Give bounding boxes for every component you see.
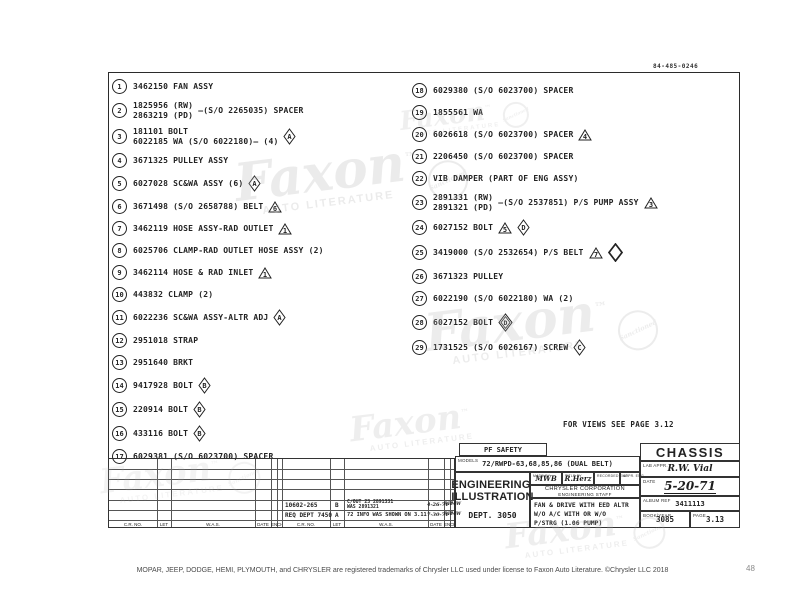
rev-a-checker: MW (451, 512, 461, 517)
drawing-corner-code: 84-485-0246 (653, 63, 698, 70)
item-number: 19 (412, 105, 427, 120)
svg-text:B: B (203, 382, 207, 390)
part-item: 276022190 (S/O 6022180) WA (2) (412, 291, 737, 306)
part-text: 220914 BOLT (133, 405, 188, 415)
models-label: MODELS (458, 458, 478, 463)
item-number: 27 (412, 291, 427, 306)
item-number: 20 (412, 127, 427, 142)
part-item: 212206450 (S/O 6023700) SPACER (412, 149, 737, 164)
item-number: 7 (112, 221, 127, 236)
part-item: 186029380 (S/O 6023700) SPACER (412, 83, 737, 98)
view-ref-triangle-icon: 6 (268, 201, 282, 213)
page-ref-label: PAGE (693, 513, 706, 518)
svg-text:A: A (288, 133, 293, 141)
part-text: 1731525 (S/O 6026167) SCREW (433, 343, 568, 353)
view-ref-triangle-icon: 7 (589, 247, 603, 259)
view-ref-triangle-icon: 1 (258, 267, 272, 279)
views-reference-note: FOR VIEWS SEE PAGE 3.12 (563, 420, 674, 429)
fastener-ref-diamond-icon: D (498, 313, 513, 332)
drawing-description-cell: FAN & DRIVE WITH EED ALTR W/O A/C WITH O… (530, 498, 640, 528)
description-line1: FAN & DRIVE WITH EED ALTR (534, 501, 636, 510)
item-number: 8 (112, 243, 127, 258)
svg-text:4: 4 (583, 133, 587, 141)
svg-text:B: B (198, 406, 202, 414)
svg-text:C: C (578, 344, 582, 352)
rev-b-checker: MW (451, 502, 461, 507)
part-item: 43671325 PULLEY ASSY (112, 153, 412, 168)
chassis-header-cell: CHASSIS (640, 443, 740, 461)
part-text: 6027028 SC&WA ASSY (6) (133, 179, 243, 189)
dept-title: ENGINEERING ILLUSTRATION (451, 480, 533, 503)
part-item: 149417928 BOLTB (112, 377, 412, 394)
page-ref-value: 3.13 (706, 515, 724, 524)
signature-cell-recorded: RECORDED ENG. (594, 472, 620, 485)
svg-text:B: B (198, 430, 202, 438)
part-item: 263671323 PULLEY (412, 269, 737, 284)
made-by-label: MADE BY (533, 474, 550, 478)
part-text: 6027152 BOLT (433, 318, 493, 328)
page-number: 48 (746, 564, 755, 573)
engineering-illustration-cell: ENGINEERING ILLUSTRATION DEPT. 3050 (455, 472, 530, 528)
title-by-label: TITLE BY (565, 474, 582, 478)
trademark-footer: MOPAR, JEEP, DODGE, HEMI, PLYMOUTH, and … (95, 567, 710, 574)
part-item: 22VIB DAMPER (PART OF ENG ASSY) (412, 171, 737, 186)
part-item: 56027028 SC&WA ASSY (6)A (112, 175, 412, 192)
album-ref-value: 3411113 (675, 500, 705, 508)
part-text: 3462114 HOSE & RAD INLET (133, 268, 253, 278)
fastener-ref-diamond-icon: B (193, 425, 206, 442)
part-text: 2891331 (RW)2891321 (PD) (433, 193, 493, 212)
rev-header-let-right: LET (330, 522, 344, 527)
item-number: 5 (112, 176, 127, 191)
part-text: 443832 CLAMP (2) (133, 290, 213, 300)
part-text: 6025706 CLAMP-RAD OUTLET HOSE ASSY (2) (133, 246, 324, 256)
part-text: 433116 BOLT (133, 429, 188, 439)
part-text: 6029380 (S/O 6023700) SPACER (433, 86, 573, 96)
item-number: 3 (112, 129, 127, 144)
rev-b-was-line2: WAS 2891321 (347, 505, 379, 510)
part-text: 3462119 HOSE ASSY-RAD OUTLET (133, 224, 273, 234)
part-item: 15220914 BOLTB (112, 401, 412, 418)
rev-header-crno-left: C.R. NO. (109, 522, 157, 527)
company-division: ENGINEERING STAFF (558, 492, 611, 497)
part-text: 6026618 (S/O 6023700) SPACER (433, 130, 573, 140)
lab-appr-signature: R.W. Vial (667, 464, 712, 474)
item-number: 6 (112, 199, 127, 214)
rev-b-cr-no: 10602-265 (285, 502, 318, 509)
view-ref-triangle-icon: 5 (498, 222, 512, 234)
rev-header-ch-right: CH (450, 522, 455, 527)
item-number: 25 (412, 245, 427, 260)
rev-a-letter: A (335, 512, 339, 519)
part-item: 232891331 (RW)2891321 (PD)—(S/O 2537851)… (412, 193, 737, 212)
models-row: MODELS 72/RWPD-63,68,85,86 (DUAL BELT) (455, 456, 640, 472)
fastener-ref-diamond-icon: A (283, 128, 296, 145)
dept-title-line2: ILLUSTRATION (451, 492, 533, 504)
fastener-ref-diamond-icon: B (198, 377, 211, 394)
fastener-ref-diamond-icon: D (517, 219, 530, 236)
fastener-ref-diamond-icon: B (193, 401, 206, 418)
date-value: 5-20-71 (664, 479, 716, 494)
pf-safety-box: PF SAFETY (459, 443, 547, 456)
page-ref-cell: PAGE 3.13 (690, 511, 740, 528)
album-ref-label: ALBUM REF (643, 498, 671, 503)
item-number: 11 (112, 310, 127, 325)
part-text-suffix: —(S/O 2537851) P/S PUMP ASSY (498, 198, 638, 207)
svg-text:A: A (278, 314, 283, 322)
rev-header-let-left: LET (157, 522, 171, 527)
part-text: 6022236 SC&WA ASSY-ALTR ADJ (133, 313, 268, 323)
description-line2: W/O A/C WITH OR W/O (534, 510, 636, 519)
part-item: 13462150 FAN ASSY (112, 79, 412, 94)
view-ref-triangle-icon: 4 (578, 129, 592, 141)
part-item: 246027152 BOLT5D (412, 219, 737, 236)
part-item: 132951640 BRKT (112, 355, 412, 370)
part-text: 6027152 BOLT (433, 223, 493, 233)
part-text: 2951640 BRKT (133, 358, 193, 368)
parts-list-right: 186029380 (S/O 6023700) SPACER191855561 … (412, 83, 737, 363)
rev-header-was-right: W.A.S. (344, 522, 428, 527)
dept-number: DEPT. 3050 (468, 511, 516, 520)
rev-header-date-right: DATE (428, 522, 444, 527)
item-number: 10 (112, 287, 127, 302)
item-number: 23 (412, 195, 427, 210)
part-item: 86025706 CLAMP-RAD OUTLET HOSE ASSY (2) (112, 243, 412, 258)
part-text-suffix: —(S/O 2265035) SPACER (198, 106, 303, 115)
item-number: 15 (112, 402, 127, 417)
signature-cell-appr: APPR. ENG. (620, 472, 640, 485)
item-number: 16 (112, 426, 127, 441)
item-number: 4 (112, 153, 127, 168)
item-number: 22 (412, 171, 427, 186)
svg-text:D: D (504, 319, 508, 327)
view-ref-triangle-icon: 1 (278, 223, 292, 235)
company-cell: CHRYSLER CORPORATION ENGINEERING STAFF (530, 485, 640, 498)
lab-appr-cell: LAB APPR. R.W. Vial (640, 461, 740, 477)
fastener-ref-diamond-icon: A (248, 175, 261, 192)
part-text: 181101 BOLT6022185 WA (S/O 6022180)— (4) (133, 127, 278, 146)
part-item: 3181101 BOLT6022185 WA (S/O 6022180)— (4… (112, 127, 412, 146)
item-number: 14 (112, 378, 127, 393)
scanned-document-page: 84-485-0246 13462150 FAN ASSY21825956 (R… (0, 0, 792, 612)
rev-header-crno-right: C.R. NO. (282, 522, 330, 527)
part-text: 1825956 (RW)2863219 (PD) (133, 101, 193, 120)
description-line3: P/STRG (1.06 PUMP) (534, 519, 636, 528)
book-cell: BOOK/YEAR 3085 (640, 511, 690, 528)
item-number: 9 (112, 265, 127, 280)
part-item: 10443832 CLAMP (2) (112, 287, 412, 302)
part-item: 286027152 BOLTD (412, 313, 737, 332)
part-item: 93462114 HOSE & RAD INLET1 (112, 265, 412, 280)
rev-a-cr-no: REQ DEPT 7450 (285, 512, 332, 519)
svg-text:7: 7 (593, 251, 597, 259)
svg-text:5: 5 (503, 226, 507, 234)
item-number: 24 (412, 220, 427, 235)
view-ref-triangle-icon: 3 (644, 197, 658, 209)
item-number: 29 (412, 340, 427, 355)
svg-text:3: 3 (649, 201, 653, 209)
part-text: 9417928 BOLT (133, 381, 193, 391)
chassis-title: CHASSIS (656, 445, 724, 460)
part-text: 3671323 PULLEY (433, 272, 503, 282)
rev-header-was-left: W.A.S. (171, 522, 255, 527)
date-label: DATE (643, 479, 655, 484)
lab-appr-label: LAB APPR. (643, 463, 668, 468)
part-item: 253419000 (S/O 2532654) P/S BELT7 (412, 243, 737, 262)
models-value: 72/RWPD-63,68,85,86 (DUAL BELT) (482, 460, 613, 468)
part-item: 63671498 (S/O 2658788) BELT6 (112, 199, 412, 214)
part-item: 16433116 BOLTB (112, 425, 412, 442)
rev-a-was-line1: 72 INFO WAS SHOWN ON 3.11 (347, 512, 427, 518)
album-ref-cell: ALBUM REF 3411113 (640, 496, 740, 511)
part-item: 191855561 WA (412, 105, 737, 120)
date-cell: DATE 5-20-71 (640, 477, 740, 496)
fastener-ref-diamond-icon: A (273, 309, 286, 326)
title-block: PF SAFETY MODELS 72/RWPD-63,68,85,86 (DU… (455, 443, 740, 528)
signature-cell-made: MADE BY MWB (530, 472, 562, 485)
part-text: 1855561 WA (433, 108, 483, 118)
part-item: 116022236 SC&WA ASSY-ALTR ADJA (112, 309, 412, 326)
part-text: 3419000 (S/O 2532654) P/S BELT (433, 248, 584, 258)
pf-safety-label: PF SAFETY (484, 446, 522, 454)
part-text: 2206450 (S/O 6023700) SPACER (433, 152, 573, 162)
svg-text:6: 6 (273, 205, 277, 213)
part-text: 3671325 PULLEY ASSY (133, 156, 228, 166)
parts-list-left: 13462150 FAN ASSY21825956 (RW)2863219 (P… (112, 79, 412, 471)
part-item: 122951018 STRAP (112, 333, 412, 348)
part-text: 2951018 STRAP (133, 336, 198, 346)
rev-header-date-left: DATE (255, 522, 271, 527)
part-text: 3462150 FAN ASSY (133, 82, 213, 92)
part-item: 73462119 HOSE ASSY-RAD OUTLET1 (112, 221, 412, 236)
part-text: 3671498 (S/O 2658788) BELT (133, 202, 263, 212)
item-number: 28 (412, 315, 427, 330)
item-number: 2 (112, 103, 127, 118)
signature-cell-title: TITLE BY R.Herz (562, 472, 594, 485)
item-number: 26 (412, 269, 427, 284)
svg-text:1: 1 (263, 271, 267, 279)
svg-text:1: 1 (283, 227, 287, 235)
part-item: 21825956 (RW)2863219 (PD)—(S/O 2265035) … (112, 101, 412, 120)
svg-text:A: A (253, 180, 258, 188)
item-number: 13 (112, 355, 127, 370)
fastener-ref-diamond-icon: C (573, 339, 586, 356)
part-text: VIB DAMPER (PART OF ENG ASSY) (433, 174, 578, 184)
rev-b-letter: B (335, 502, 339, 509)
svg-text:D: D (522, 224, 526, 232)
part-text: 6022190 (S/O 6022180) WA (2) (433, 294, 573, 304)
item-number: 1 (112, 79, 127, 94)
part-item: 291731525 (S/O 6026167) SCREWC (412, 339, 737, 356)
item-number: 12 (112, 333, 127, 348)
revision-table: 10602-265 B C/OUT 23 2891331 WAS 2891321… (108, 458, 455, 528)
book-label: BOOK/YEAR (643, 513, 671, 518)
item-number: 21 (412, 149, 427, 164)
fastener-ref-diamond-icon (608, 243, 623, 262)
item-number: 18 (412, 83, 427, 98)
part-item: 206026618 (S/O 6023700) SPACER4 (412, 127, 737, 142)
faxon-watermark-subtitle: AUTO LITERATURE (524, 538, 629, 560)
